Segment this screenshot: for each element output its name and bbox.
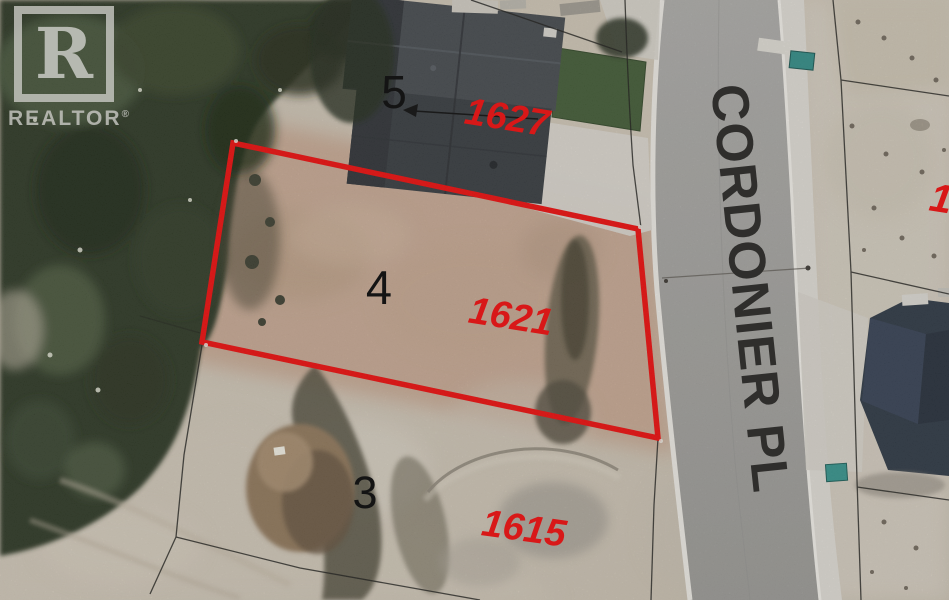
lot-4-number: 4 <box>366 261 392 314</box>
realtor-brand-text: REALTOR <box>8 107 122 130</box>
realtor-watermark: R REALTOR® <box>8 4 120 130</box>
aerial-photo-canvas: CORDONIER PL 5 4 3 1627 1621 1615 1 <box>0 0 949 600</box>
lot-5-number: 5 <box>381 66 407 118</box>
realtor-logo-r: R <box>35 19 93 89</box>
realtor-logo-box: R <box>14 6 114 102</box>
lot-3-number: 3 <box>352 467 377 518</box>
realtor-wordmark: REALTOR® <box>8 104 120 130</box>
registered-symbol: ® <box>122 109 129 120</box>
aerial-lot-photo: CORDONIER PL 5 4 3 1627 1621 1615 1 R RE… <box>0 0 949 600</box>
